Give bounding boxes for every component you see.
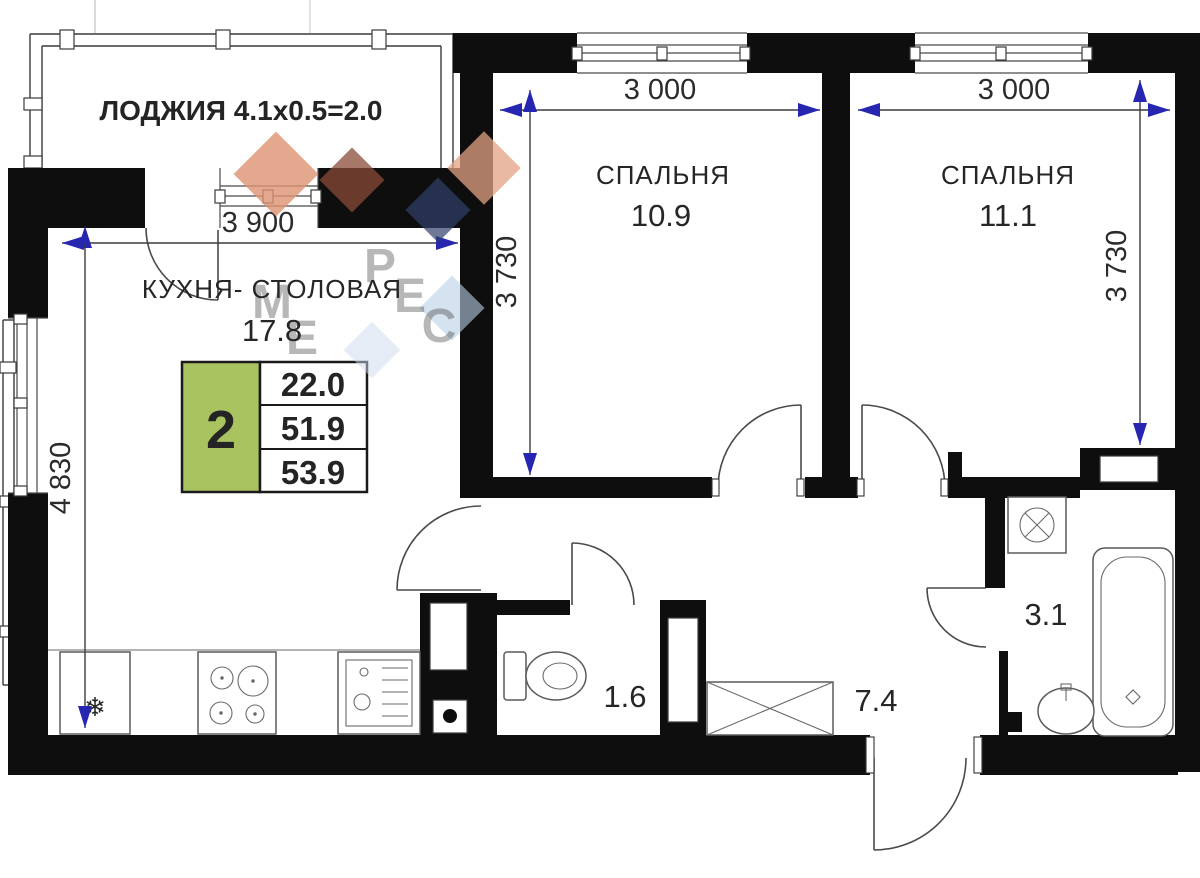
room-area-bedroom2: 11.1 bbox=[979, 198, 1037, 233]
room-label-bedroom1: СПАЛЬНЯ bbox=[596, 160, 730, 190]
dim-bedroom1-width: 3 000 bbox=[500, 74, 820, 117]
door-bathroom bbox=[927, 588, 986, 647]
toilet-icon bbox=[504, 652, 586, 700]
door-kitchen-hall bbox=[397, 506, 481, 590]
floor-plan: ЛОДЖИЯ 4.1х0.5=2.0 bbox=[0, 0, 1200, 878]
duct-shaft-icon bbox=[668, 618, 698, 722]
duct-shaft-icon bbox=[1100, 456, 1158, 482]
svg-text:С: С bbox=[422, 300, 457, 353]
duct-dot-icon bbox=[443, 709, 457, 723]
glazing-tick-icon bbox=[216, 30, 230, 49]
door-entrance bbox=[874, 758, 966, 850]
context-lines bbox=[95, 0, 310, 33]
svg-text:3 900: 3 900 bbox=[222, 207, 295, 239]
dim-bedroom2-height: 3 730 bbox=[1101, 80, 1147, 445]
svg-text:Е: Е bbox=[286, 312, 318, 365]
wardrobe-icon bbox=[707, 682, 833, 735]
washing-machine-icon bbox=[1008, 497, 1066, 553]
door-bedroom2 bbox=[862, 405, 945, 488]
area-value-total: 53.9 bbox=[281, 454, 345, 491]
window-bedroom1-icon bbox=[572, 33, 750, 73]
area-value-usable: 51.9 bbox=[281, 410, 345, 447]
kitchen-sink-icon bbox=[338, 652, 420, 734]
svg-text:3 000: 3 000 bbox=[978, 74, 1051, 106]
svg-text:3 730: 3 730 bbox=[491, 236, 523, 309]
door-bedroom1 bbox=[718, 405, 801, 488]
duct-shaft-icon bbox=[430, 603, 467, 670]
svg-text:4 830: 4 830 bbox=[45, 442, 77, 515]
loggia-label: ЛОДЖИЯ 4.1х0.5=2.0 bbox=[99, 95, 382, 126]
glazing-tick-icon bbox=[60, 30, 74, 49]
svg-text:3 000: 3 000 bbox=[624, 74, 697, 106]
room-area-bathroom: 3.1 bbox=[1024, 597, 1067, 632]
stove-icon bbox=[198, 652, 276, 734]
floor-plan-drawing: ЛОДЖИЯ 4.1х0.5=2.0 bbox=[0, 0, 1200, 878]
dim-bedroom2-width: 3 000 bbox=[858, 74, 1170, 117]
bathroom-sink-icon bbox=[1038, 684, 1094, 734]
bathtub-icon bbox=[1093, 548, 1173, 736]
area-value-living: 22.0 bbox=[281, 366, 345, 403]
rooms-count: 2 bbox=[206, 400, 236, 460]
room-area-wc: 1.6 bbox=[603, 679, 646, 714]
loggia: ЛОДЖИЯ 4.1х0.5=2.0 bbox=[24, 30, 453, 168]
door-wc bbox=[572, 543, 634, 605]
svg-text:3 730: 3 730 bbox=[1101, 230, 1133, 303]
room-area-hall: 7.4 bbox=[854, 683, 897, 718]
info-table: 2 22.0 51.9 53.9 bbox=[182, 362, 367, 492]
room-area-bedroom1: 10.9 bbox=[631, 198, 691, 233]
room-label-bedroom2: СПАЛЬНЯ bbox=[941, 160, 1075, 190]
glazing-tick-icon bbox=[24, 98, 42, 110]
fridge-icon: ❄ bbox=[60, 652, 130, 734]
window-bedroom2-icon bbox=[910, 33, 1092, 73]
svg-text:Р: Р bbox=[364, 240, 396, 293]
glazing-tick-icon bbox=[372, 30, 386, 49]
glazing-tick-icon bbox=[24, 156, 42, 168]
